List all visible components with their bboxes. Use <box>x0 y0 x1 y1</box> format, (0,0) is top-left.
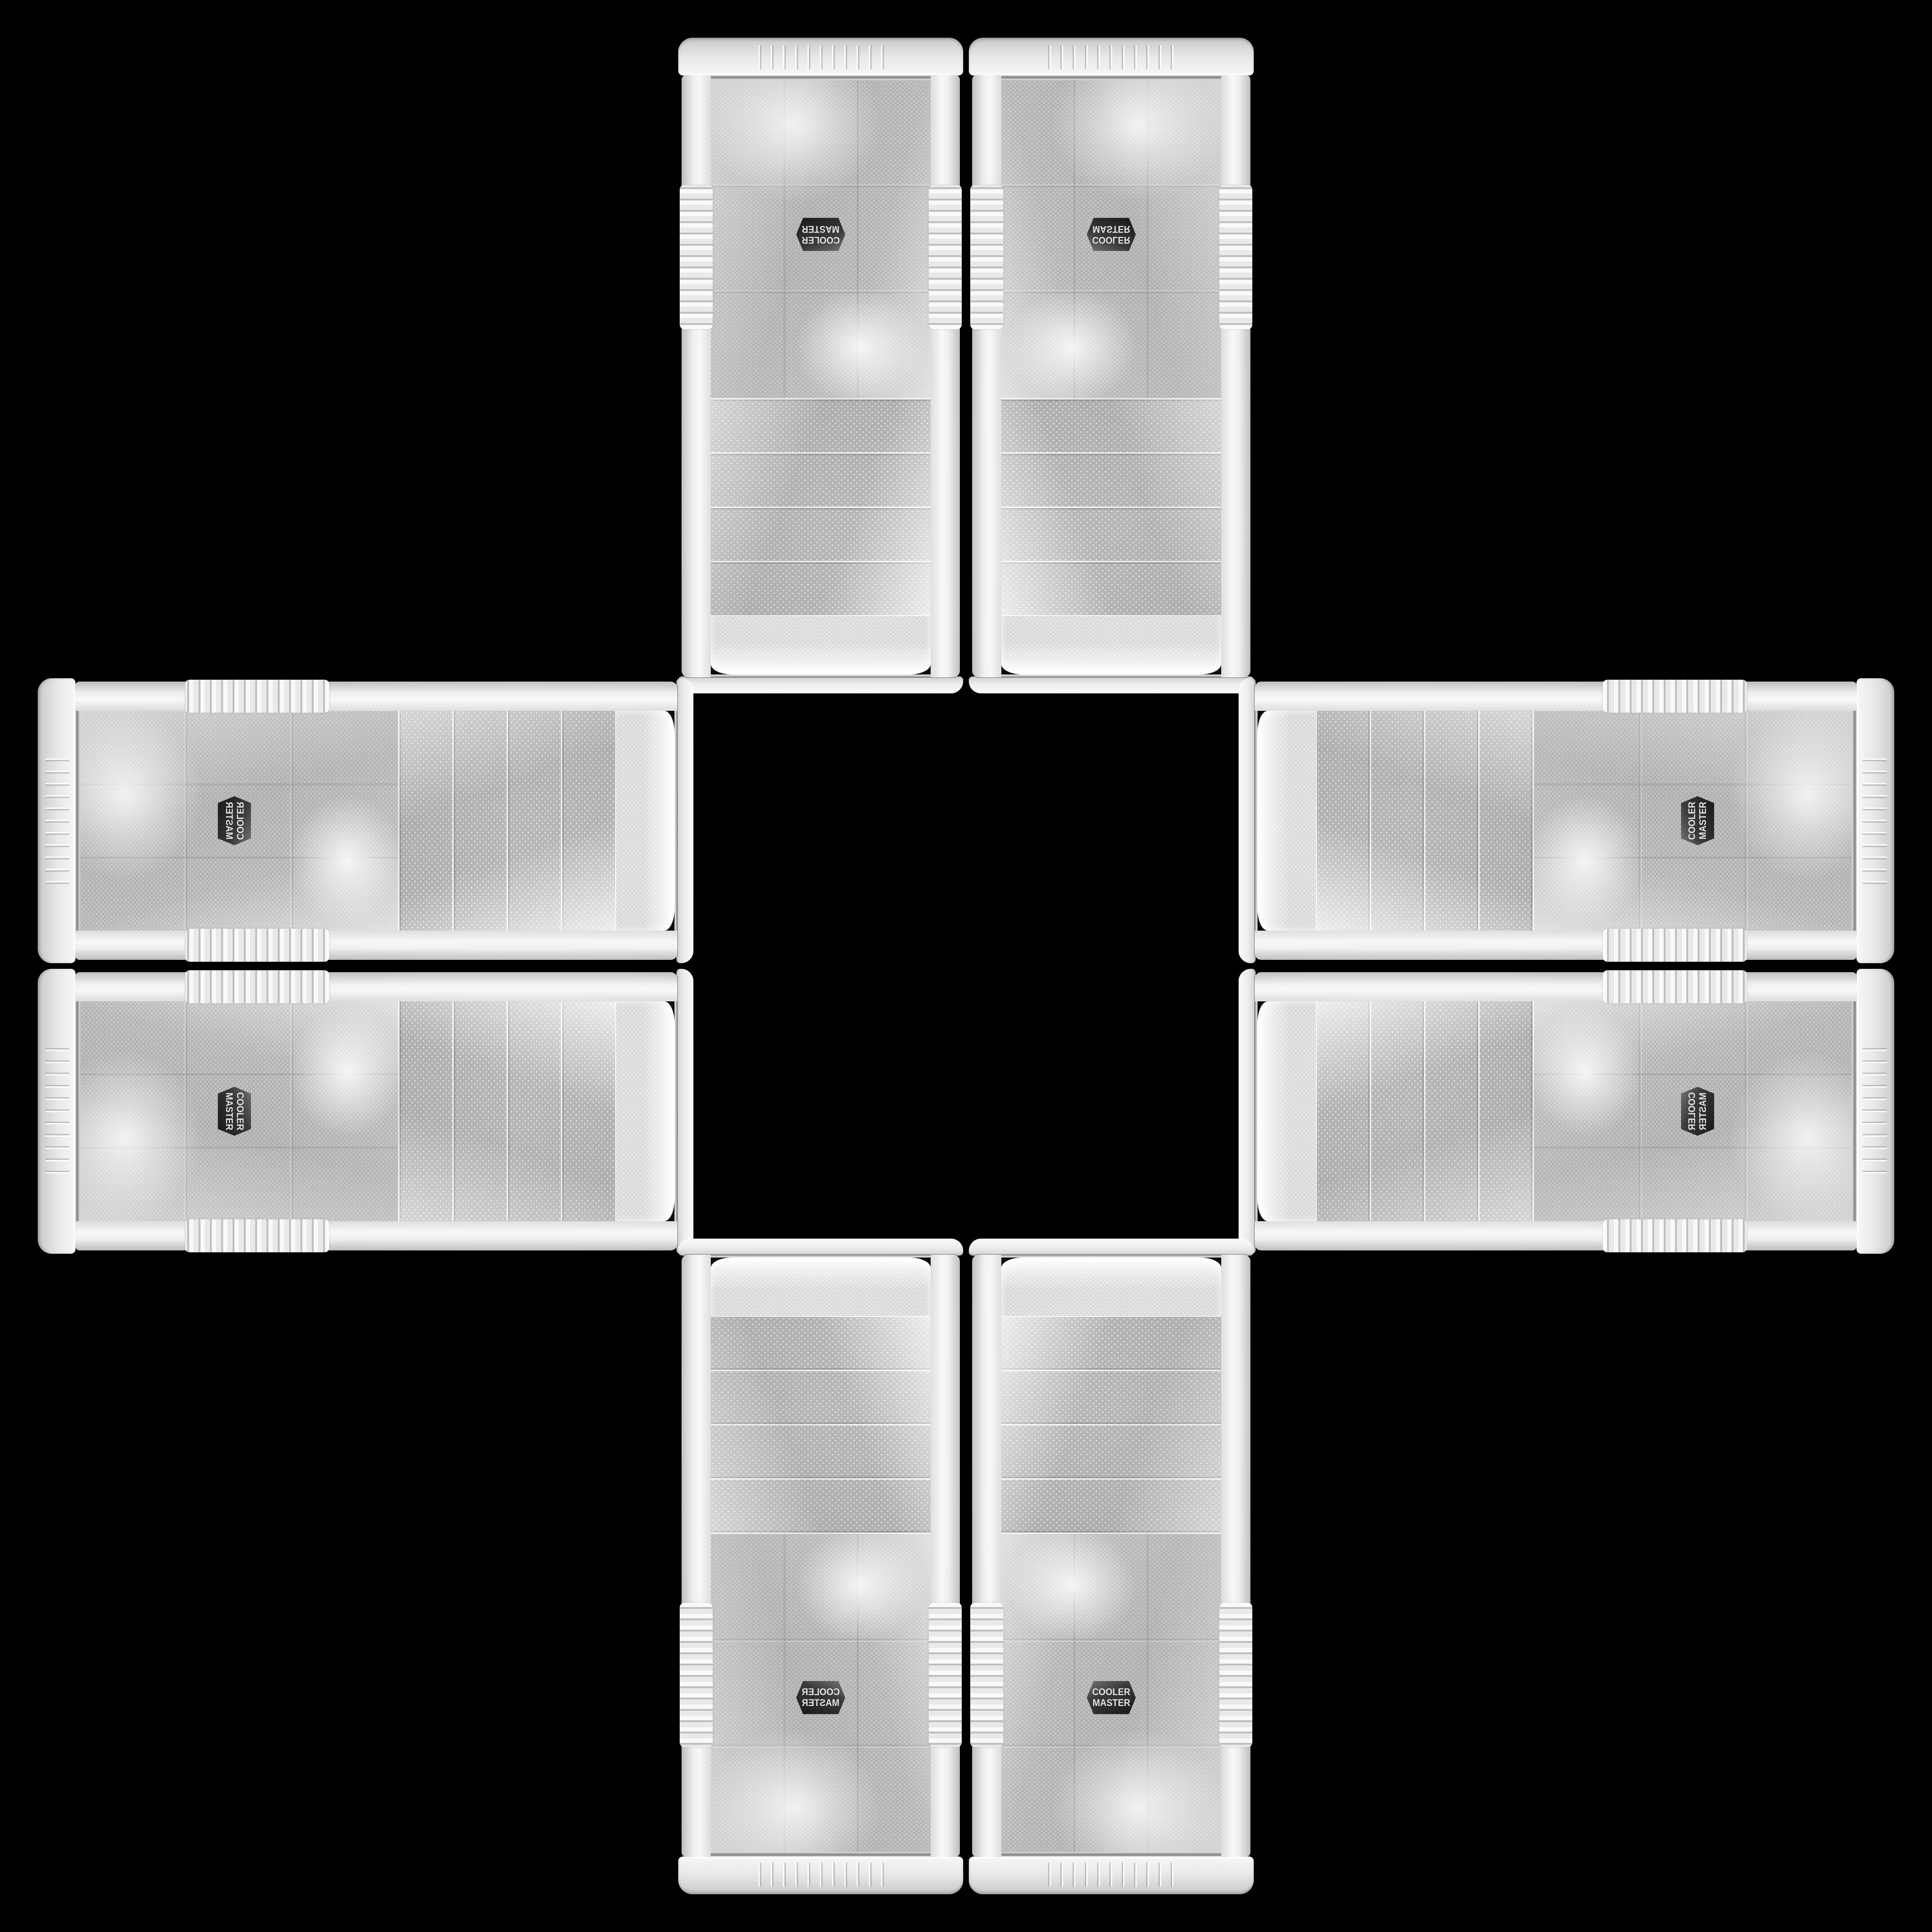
panel-end-cap-ribbed <box>38 678 75 963</box>
ribbed-grip <box>929 1603 962 1747</box>
badge-text-line2: MASTER <box>802 1698 840 1708</box>
chrome-trim-line <box>75 685 80 956</box>
badge-text-line2: MASTER <box>1092 1698 1130 1708</box>
cap-rib-strip <box>45 752 69 889</box>
case-front-panel-bottom-right: COOLER MASTER <box>972 1239 1250 1894</box>
chrome-trim-line <box>976 675 1247 678</box>
chrome-trim-line <box>685 75 956 80</box>
cap-rib-strip <box>752 45 889 69</box>
cooler-master-badge: COOLER MASTER <box>796 216 845 253</box>
chrome-trim-line <box>1254 685 1257 956</box>
side-rail <box>1255 931 1857 960</box>
badge-text-line2: MASTER <box>224 802 234 840</box>
chrome-trim-line <box>675 976 678 1247</box>
badge-text-line2: MASTER <box>1698 1092 1708 1130</box>
panel-end-cap-ribbed <box>1857 969 1894 1254</box>
chrome-trim-line <box>675 685 678 956</box>
cooler-master-badge: COOLER MASTER <box>1087 216 1136 253</box>
ribbed-grip <box>1219 185 1252 329</box>
ribbed-grip <box>680 1603 713 1747</box>
cap-rib-strip <box>1863 1043 1887 1180</box>
side-rail <box>1221 75 1250 677</box>
cooler-master-badge: COOLER MASTER <box>796 1679 845 1716</box>
side-rail <box>682 75 711 677</box>
case-front-panel-right-top: COOLER MASTER <box>1239 682 1894 960</box>
case-front-panel-top-right: COOLER MASTER <box>972 38 1250 693</box>
bright-mesh-band <box>616 1001 675 1221</box>
drive-bay-mesh-covers <box>398 711 616 931</box>
badge-text-line1: COOLER <box>802 234 840 245</box>
side-rail <box>972 1255 1001 1857</box>
bright-mesh-band <box>711 1257 931 1316</box>
panel-end-cap-ribbed <box>969 1857 1254 1894</box>
case-front-panel-top-left: COOLER MASTER <box>682 38 960 693</box>
ribbed-grip <box>970 1603 1003 1747</box>
ribbed-grip <box>1603 929 1747 962</box>
cap-rib-strip <box>1043 45 1180 69</box>
side-rail <box>75 682 677 711</box>
side-rail <box>75 1221 677 1250</box>
cap-rib-strip <box>1043 1863 1180 1887</box>
ribbed-grip <box>680 185 713 329</box>
badge-text-line2: MASTER <box>802 224 840 234</box>
cap-rib-strip <box>1863 752 1887 889</box>
panel-end-cap-thin <box>1239 969 1256 1254</box>
panel-end-cap-ribbed <box>678 1857 963 1894</box>
panel-end-cap-ribbed <box>38 969 75 1254</box>
chrome-trim-line <box>976 75 1247 80</box>
badge-text-line2: MASTER <box>224 1092 234 1130</box>
case-front-panel-left-bottom: COOLER MASTER <box>38 972 693 1250</box>
chrome-trim-line <box>976 1254 1247 1257</box>
panel-end-cap-thin <box>676 969 693 1254</box>
panel-end-cap-thin <box>969 1239 1254 1256</box>
badge-text-line1: COOLER <box>1092 234 1131 245</box>
drive-bay-mesh-covers <box>711 398 931 616</box>
cooler-master-badge: COOLER MASTER <box>1679 796 1716 845</box>
bright-mesh-band <box>711 616 931 675</box>
drive-bay-mesh-covers <box>1001 1316 1221 1534</box>
cap-rib-strip <box>45 1043 69 1180</box>
chrome-trim-line <box>75 976 80 1247</box>
panel-end-cap-thin <box>1239 678 1256 963</box>
drive-bay-mesh-covers <box>1316 711 1534 931</box>
chrome-trim-line <box>685 675 956 678</box>
badge-text-line1: COOLER <box>1092 1687 1131 1698</box>
ribbed-grip <box>185 970 329 1003</box>
bright-mesh-band <box>616 711 675 931</box>
drive-bay-mesh-covers <box>1001 398 1221 616</box>
panel-end-cap-ribbed <box>678 38 963 75</box>
panel-end-cap-ribbed <box>1857 678 1894 963</box>
ribbed-grip <box>970 185 1003 329</box>
chrome-trim-line <box>1254 976 1257 1247</box>
ribbed-grip <box>929 185 962 329</box>
ribbed-grip <box>185 929 329 962</box>
side-rail <box>931 1255 960 1857</box>
badge-text-line1: COOLER <box>234 1092 245 1131</box>
bright-mesh-band <box>1257 1001 1316 1221</box>
panel-end-cap-thin <box>678 676 963 693</box>
ribbed-grip <box>1603 680 1747 713</box>
side-rail <box>1221 1255 1250 1857</box>
drive-bay-mesh-covers <box>1316 1001 1534 1221</box>
cooler-master-badge: COOLER MASTER <box>1087 1679 1136 1716</box>
side-rail <box>682 1255 711 1857</box>
cooler-master-badge: COOLER MASTER <box>216 1087 253 1136</box>
badge-text-line2: MASTER <box>1092 224 1130 234</box>
side-rail <box>1255 972 1857 1001</box>
cooler-master-badge: COOLER MASTER <box>216 796 253 845</box>
side-rail <box>931 75 960 677</box>
cap-rib-strip <box>752 1863 889 1887</box>
case-front-panel-right-bottom: COOLER MASTER <box>1239 972 1894 1250</box>
ribbed-grip <box>185 680 329 713</box>
case-front-panel-bottom-left: COOLER MASTER <box>682 1239 960 1894</box>
badge-text-line1: COOLER <box>1687 1092 1698 1131</box>
panel-end-cap-ribbed <box>969 38 1254 75</box>
badge-text-line1: COOLER <box>234 802 245 840</box>
drive-bay-mesh-covers <box>711 1316 931 1534</box>
side-rail <box>972 75 1001 677</box>
side-rail <box>75 931 677 960</box>
cooler-master-badge: COOLER MASTER <box>1679 1087 1716 1136</box>
bright-mesh-band <box>1001 616 1221 675</box>
ribbed-grip <box>1219 1603 1252 1747</box>
ribbed-grip <box>1603 1219 1747 1252</box>
side-rail <box>1255 682 1857 711</box>
side-rail <box>1255 1221 1857 1250</box>
badge-text-line1: COOLER <box>1687 802 1698 840</box>
ribbed-grip <box>185 1219 329 1252</box>
black-background-canvas: COOLER MASTER COOLER MASTER COOL <box>0 0 1932 1932</box>
panel-end-cap-thin <box>969 676 1254 693</box>
panel-end-cap-thin <box>678 1239 963 1256</box>
case-front-panel-left-top: COOLER MASTER <box>38 682 693 960</box>
panel-end-cap-thin <box>676 678 693 963</box>
chrome-trim-line <box>685 1254 956 1257</box>
side-rail <box>75 972 677 1001</box>
bright-mesh-band <box>1001 1257 1221 1316</box>
ribbed-grip <box>1603 970 1747 1003</box>
badge-text-line1: COOLER <box>802 1687 840 1698</box>
badge-text-line2: MASTER <box>1698 802 1708 840</box>
bright-mesh-band <box>1257 711 1316 931</box>
drive-bay-mesh-covers <box>398 1001 616 1221</box>
